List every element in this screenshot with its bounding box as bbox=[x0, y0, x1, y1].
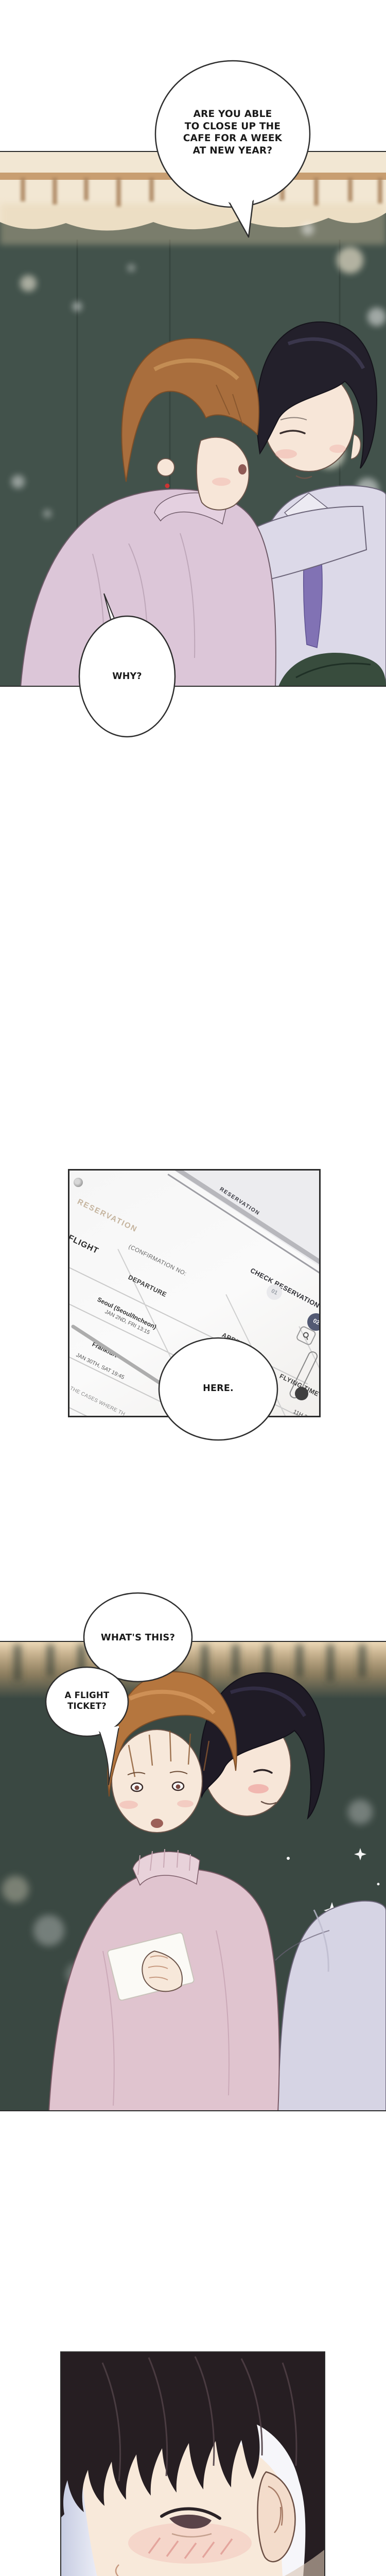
panel-face-closeup bbox=[60, 2351, 325, 2576]
speech-bubble-flight-ticket-text: A FLIGHT TICKET? bbox=[54, 1690, 120, 1711]
row1-flying-time: 11H 30M bbox=[292, 1409, 315, 1417]
ear bbox=[258, 2472, 295, 2562]
home-button-dot bbox=[295, 1387, 308, 1400]
row2-arrival-time: JAN 30 bbox=[168, 1401, 186, 1415]
panel4-illustration bbox=[61, 2352, 325, 2576]
panel-flight-reservation: RESERVATION RESERVATION FLIGHT (CONFIRMA… bbox=[68, 1169, 321, 1417]
col-departure: DEPARTURE bbox=[127, 1274, 168, 1298]
panel-hug-scene bbox=[0, 151, 386, 687]
check-reservation-button: CHECK RESERVATION bbox=[249, 1266, 321, 1310]
panel3-illustration bbox=[0, 1642, 386, 2111]
step-1-badge: 01 bbox=[267, 1284, 282, 1300]
panel1-illustration bbox=[0, 152, 386, 687]
flight-label: FLIGHT bbox=[68, 1233, 100, 1256]
red-earring bbox=[165, 484, 170, 488]
confirmation-no-label: (CONFIRMATION NO: bbox=[128, 1244, 188, 1277]
screw-icon bbox=[74, 1178, 83, 1187]
wooden-rail bbox=[0, 173, 386, 180]
webtoon-page: ARE YOU ABLE TO CLOSE UP THE CAFE FOR A … bbox=[0, 0, 386, 2576]
character-brown-hair bbox=[21, 338, 276, 687]
speech-bubble-whats-this-text: WHAT'S THIS? bbox=[97, 1632, 179, 1643]
row1-arrival-city: Frankfurt bbox=[206, 1349, 234, 1367]
row2-arrival-city: (Seo bbox=[188, 1395, 202, 1406]
speech-bubble-question-text: ARE YOU ABLE TO CLOSE UP THE CAFE FOR A … bbox=[166, 108, 300, 157]
speech-bubble-why-text: WHY? bbox=[89, 671, 166, 682]
step-1-text: 01 bbox=[270, 1288, 278, 1296]
reservation-tab-label: RESERVATION bbox=[76, 1197, 139, 1234]
step-2-text: 02 bbox=[312, 1318, 321, 1326]
speech-bubble-here-text: HERE. bbox=[180, 1383, 257, 1394]
